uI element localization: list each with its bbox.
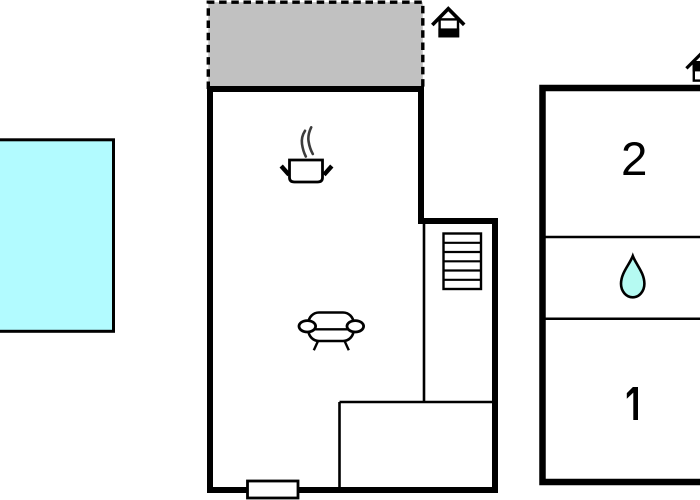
svg-text:2: 2 [621, 133, 647, 186]
